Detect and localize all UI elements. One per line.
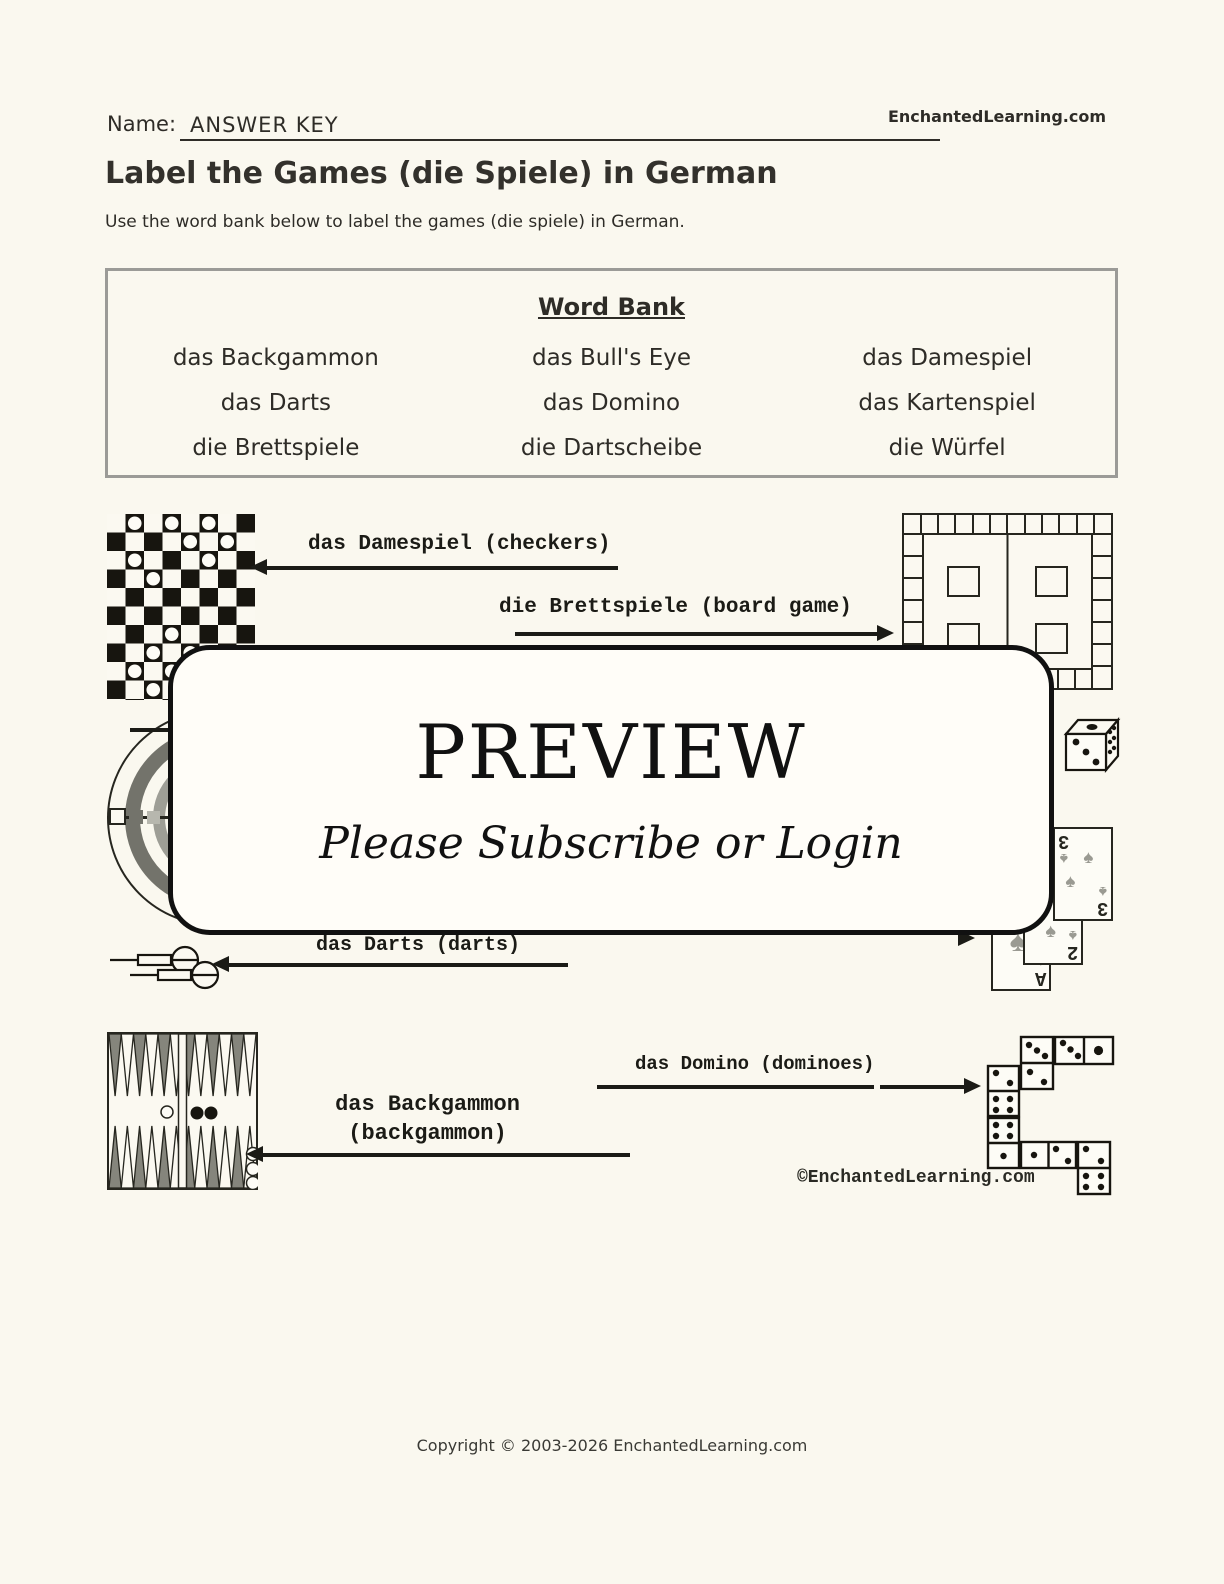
page-title: Label the Games (die Spiele) in German [105,156,778,191]
word-bank-entry: das Domino [444,390,780,416]
arrow-left-icon [212,956,229,972]
name-value: ANSWER KEY [190,113,339,137]
card-value: 3 [1097,898,1108,917]
arrow-left-icon [246,1146,263,1162]
preview-subscribe-login-text: Please Subscribe or Login [173,818,1049,869]
word-bank-entry: das Damespiel [779,345,1115,371]
word-bank-entry: das Bull's Eye [444,345,780,371]
label-underline [515,632,851,636]
dice-image [1060,710,1122,774]
hidden-label-line [130,728,170,732]
word-bank-entry: das Kartenspiel [779,390,1115,416]
label-underline [257,963,568,967]
instructions-text: Use the word bank below to label the gam… [105,212,685,232]
arrow-shaft [264,566,298,570]
word-bank-grid: das Backgammon das Bull's Eye das Damesp… [108,335,1115,470]
word-bank-box: Word Bank das Backgammon das Bull's Eye … [105,268,1118,478]
arrow-right-icon [877,625,894,641]
word-bank-entry: die Dartscheibe [444,435,780,461]
card-suit: ♠ [1065,873,1076,893]
arrow-left-icon [250,559,267,575]
arrow-shaft [849,632,879,636]
card-value: A [1035,968,1046,987]
card-value: 3 [1058,831,1069,850]
word-bank-entry: das Backgammon [108,345,444,371]
preview-overlay[interactable]: PREVIEW Please Subscribe or Login [168,645,1054,935]
answer-label-backgammon-line2: (backgammon) [330,1119,525,1148]
word-bank-entry: die Würfel [779,435,1115,461]
watermark: ©EnchantedLearning.com [797,1168,1035,1188]
worksheet-page: Name: ANSWER KEY EnchantedLearning.com L… [0,0,1224,1584]
darts-image [108,936,226,992]
label-underline [298,566,618,570]
answer-label-brettspiele: die Brettspiele (board game) [499,596,852,619]
backgammon-board-image [107,1032,258,1190]
card-suit: ♠ [1045,921,1056,943]
arrow-right-icon [964,1078,981,1094]
copyright-footer: Copyright © 2003-2026 EnchantedLearning.… [0,1436,1224,1455]
preview-title: PREVIEW [173,708,1049,796]
answer-label-backgammon-line1: das Backgammon [330,1090,525,1119]
label-underline [262,1153,630,1157]
answer-label-domino: das Domino (dominoes) [635,1053,874,1075]
word-bank-entry: das Darts [108,390,444,416]
label-underline [597,1085,874,1089]
word-bank-title: Word Bank [108,293,1115,321]
word-bank-entry: die Brettspiele [108,435,444,461]
card-suit: ♠ [1068,927,1077,942]
name-label: Name: [107,112,176,136]
answer-label-darts: das Darts (darts) [316,934,520,957]
card-suit: ♠ [1098,883,1107,898]
card-suit: ♠ [1083,849,1094,869]
site-link[interactable]: EnchantedLearning.com [888,107,1106,126]
answer-label-backgammon: das Backgammon (backgammon) [330,1090,525,1148]
name-underline [180,139,940,141]
arrow-shaft [229,963,257,967]
arrow-shaft [880,1085,966,1089]
card-value: 2 [1067,942,1078,961]
answer-label-damespiel: das Damespiel (checkers) [308,533,610,556]
card-suit: ♠ [1059,850,1068,865]
playing-card-three: ♠3 ♠ ♠ 3♠ [1053,827,1113,921]
